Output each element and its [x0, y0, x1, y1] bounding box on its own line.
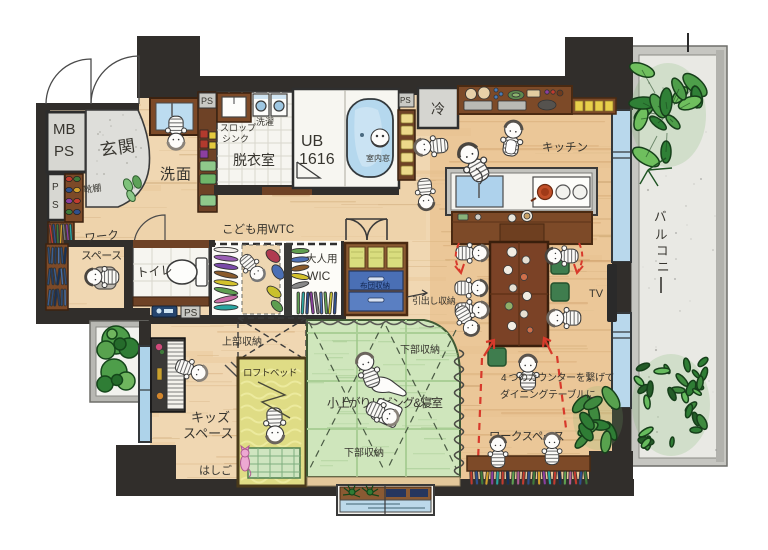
svg-text:下部収納: 下部収納 [344, 446, 384, 459]
svg-text:はしご: はしご [199, 463, 232, 477]
svg-text:PS: PS [54, 143, 74, 160]
svg-text:4 つのカウンターを繋げて: 4 つのカウンターを繋げて [501, 371, 614, 384]
svg-text:TV: TV [589, 288, 604, 300]
svg-text:大人用: 大人用 [306, 252, 338, 265]
svg-text:キッチン: キッチン [542, 141, 588, 154]
svg-text:ダイニングテーブルに: ダイニングテーブルに [500, 388, 595, 401]
svg-text:P: P [52, 182, 59, 193]
svg-text:PS: PS [400, 96, 411, 105]
svg-text:MB: MB [53, 121, 76, 138]
svg-text:下部収納: 下部収納 [400, 343, 440, 356]
svg-text:洗濯: 洗濯 [256, 116, 274, 127]
svg-text:ル: ル [655, 228, 668, 242]
svg-text:PS: PS [201, 96, 213, 106]
svg-text:スペース: スペース [81, 250, 122, 262]
svg-text:S: S [52, 200, 59, 211]
svg-text:WIC: WIC [307, 269, 331, 283]
svg-text:1616: 1616 [299, 151, 335, 168]
svg-text:バ: バ [654, 210, 667, 224]
svg-text:洗面: 洗面 [160, 166, 192, 183]
svg-text:UB: UB [301, 133, 323, 150]
svg-text:室内窓: 室内窓 [366, 153, 390, 163]
svg-text:スペース: スペース [183, 426, 233, 441]
svg-text:こども用WTC: こども用WTC [222, 223, 294, 236]
svg-text:シンク: シンク [222, 134, 249, 144]
svg-text:冷: 冷 [431, 101, 445, 117]
svg-text:コ: コ [656, 244, 669, 258]
svg-text:スロップ: スロップ [220, 123, 256, 133]
svg-text:ニ: ニ [657, 260, 670, 274]
svg-text:PS: PS [184, 308, 198, 319]
svg-text:ロフトベッド: ロフトベッド [243, 368, 297, 379]
svg-text:上部収納: 上部収納 [222, 335, 262, 348]
svg-text:脱衣室: 脱衣室 [233, 152, 275, 168]
svg-text:引出し収納: 引出し収納 [412, 295, 456, 306]
svg-text:キッズ: キッズ [191, 410, 230, 425]
svg-text:布団収納: 布団収納 [360, 280, 390, 290]
